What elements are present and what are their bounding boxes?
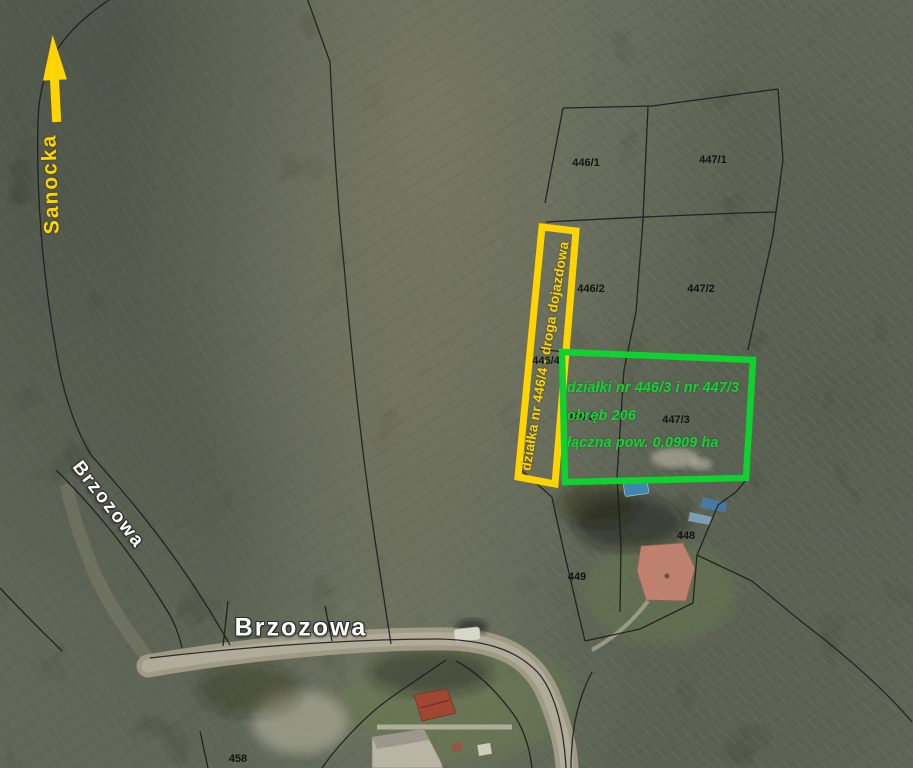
aerial-map: 446/1 447/1 446/2 447/2 446/3 447/3 446/…: [0, 0, 913, 768]
offer-line-area: łączna pow. 0,0909 ha: [567, 429, 739, 457]
annotation-layer: [0, 0, 913, 768]
offer-line-district: obręb 206: [567, 402, 739, 430]
street-label-sanocka: Sanocka: [37, 133, 64, 234]
north-arrow-icon: [41, 34, 70, 122]
street-label-brzozowa-lower: Brzozowa: [235, 614, 368, 643]
offer-line-parcels: działki nr 446/3 i nr 447/3: [567, 374, 739, 402]
offer-area-caption: działki nr 446/3 i nr 447/3 obręb 206 łą…: [567, 374, 739, 457]
